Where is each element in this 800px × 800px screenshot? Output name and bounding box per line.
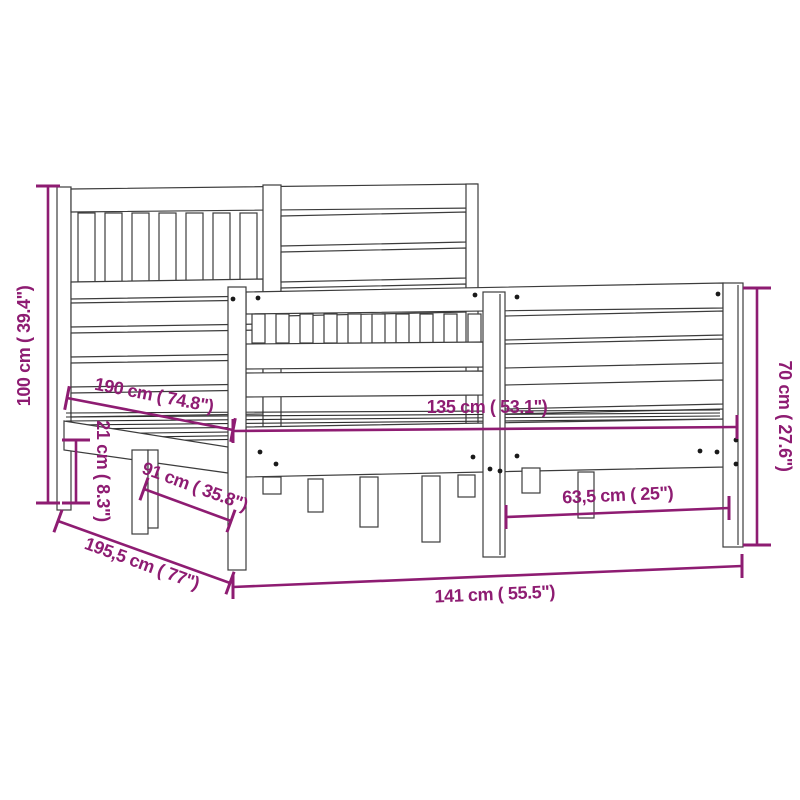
diagram-canvas: 100 cm ( 39.4") 21 cm ( 8.3") 190 cm ( 7… bbox=[0, 0, 800, 800]
dimension-label-total-width: 141 cm ( 55.5") bbox=[434, 581, 556, 606]
dimension-headboard-height: 100 cm ( 39.4") bbox=[14, 186, 60, 503]
footboard-vertical-slats bbox=[252, 314, 481, 343]
footboard-mid-rail bbox=[246, 342, 483, 369]
dimension-label-total-length: 195,5 cm ( 77") bbox=[82, 533, 203, 593]
footboard-far-post bbox=[483, 292, 505, 557]
dimension-label-headboard-height: 100 cm ( 39.4") bbox=[14, 285, 34, 406]
footboard-lower-rail bbox=[246, 371, 483, 397]
dimension-label-inner-width: 135 cm ( 53.1") bbox=[427, 397, 548, 417]
bed-frame-dimension-diagram: 100 cm ( 39.4") 21 cm ( 8.3") 190 cm ( 7… bbox=[0, 0, 800, 800]
dimension-total-width: 141 cm ( 55.5") bbox=[233, 554, 742, 607]
headboard-left-post bbox=[57, 187, 71, 510]
headboard-vertical-slats bbox=[78, 213, 257, 282]
dimension-label-footboard-height: 70 cm ( 27.6") bbox=[775, 361, 795, 472]
dimension-label-under-bed-clearance: 21 cm ( 8.3") bbox=[93, 420, 113, 522]
dimension-label-panel-width: 63,5 cm ( 25") bbox=[562, 483, 674, 508]
dimension-footboard-height: 70 cm ( 27.6") bbox=[743, 288, 795, 545]
